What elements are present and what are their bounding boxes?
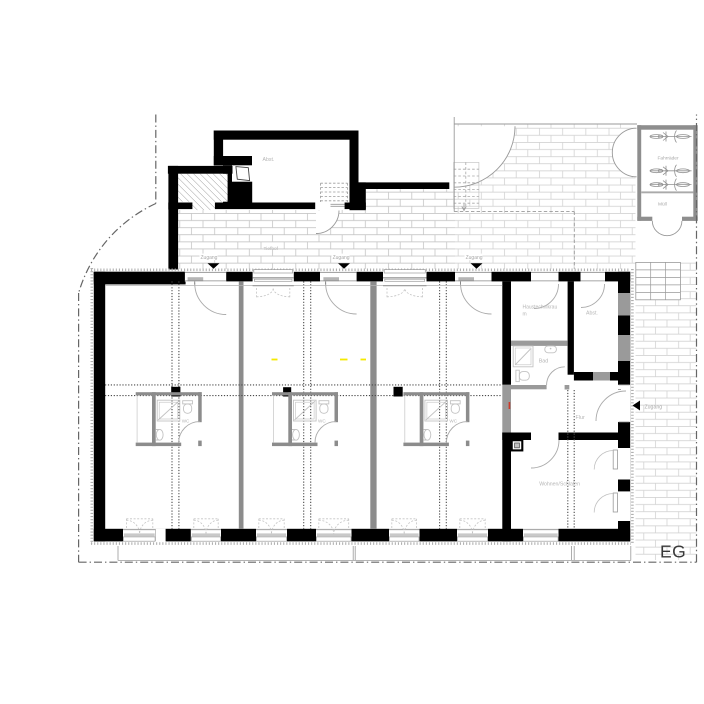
svg-text:Abst.: Abst. <box>586 311 598 317</box>
svg-text:Zugang: Zugang <box>645 405 663 411</box>
svg-text:Fahrräder: Fahrräder <box>658 155 679 161</box>
svg-text:Abst.: Abst. <box>263 157 275 163</box>
svg-text:m: m <box>523 312 527 318</box>
svg-text:Zugang: Zugang <box>466 255 483 261</box>
svg-text:Haustechnikrau: Haustechnikrau <box>523 305 558 311</box>
svg-text:Wohnen/Schlafen: Wohnen/Schlafen <box>539 481 580 487</box>
svg-text:Bad: Bad <box>539 358 549 364</box>
svg-text:Müll: Müll <box>658 202 667 208</box>
svg-text:Zugang: Zugang <box>201 255 218 261</box>
svg-text:WC: WC <box>449 419 457 424</box>
svg-text:EG: EG <box>660 542 686 562</box>
svg-text:Zugang: Zugang <box>333 255 350 261</box>
svg-text:Flur: Flur <box>576 415 585 421</box>
svg-text:Tiefhof: Tiefhof <box>264 246 279 252</box>
svg-text:WC: WC <box>182 419 190 424</box>
svg-text:WC: WC <box>318 419 326 424</box>
